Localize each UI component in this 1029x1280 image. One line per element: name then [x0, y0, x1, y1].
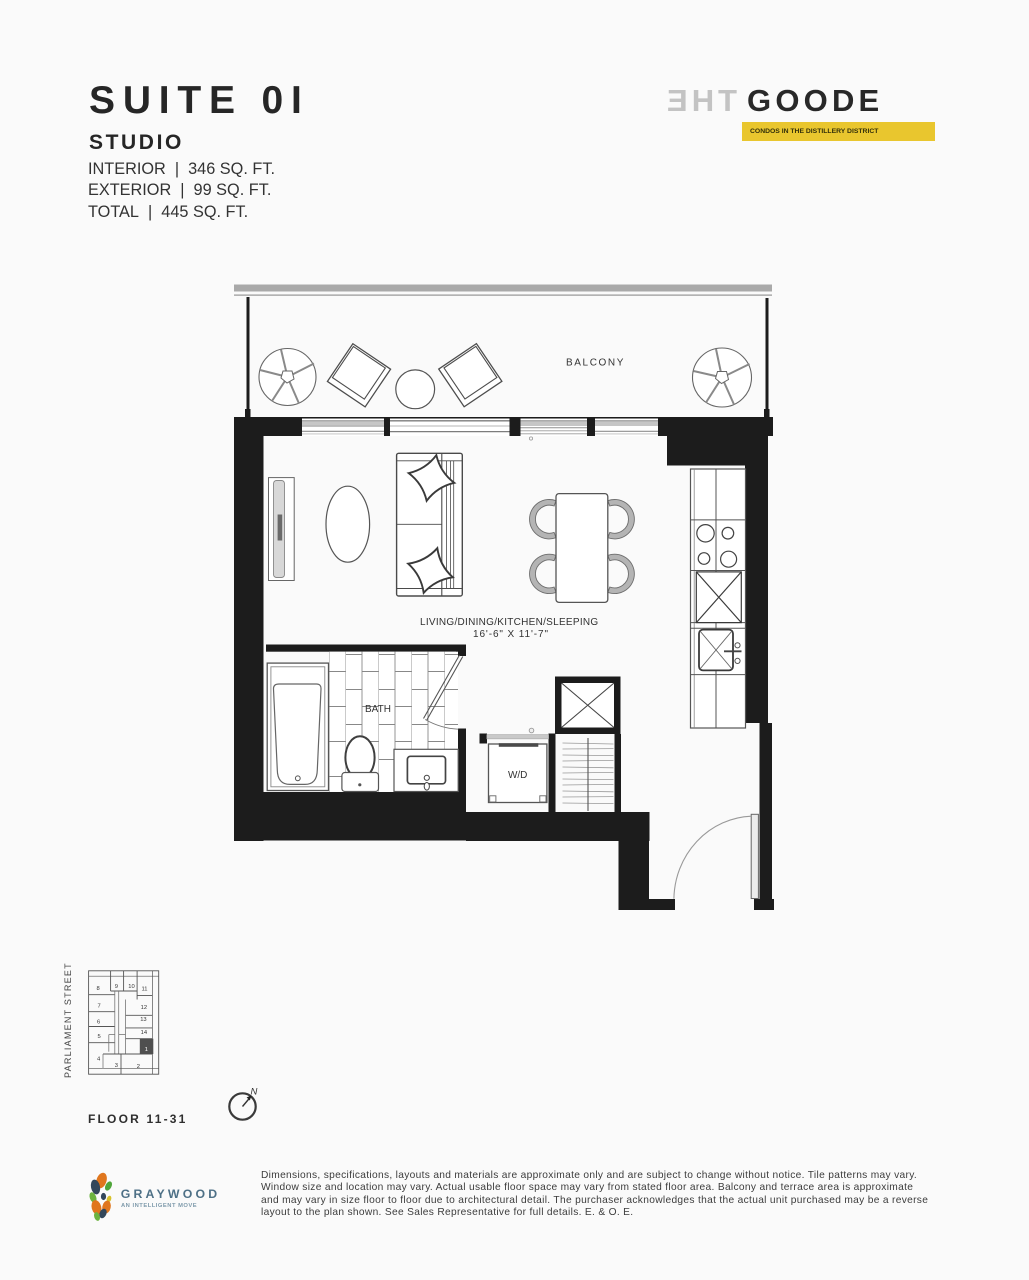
- svg-text:10: 10: [128, 984, 134, 990]
- svg-text:8: 8: [97, 986, 100, 992]
- svg-text:9: 9: [115, 984, 118, 990]
- svg-text:11: 11: [142, 987, 148, 993]
- svg-text:16'-6" X 11'-7": 16'-6" X 11'-7": [473, 629, 549, 640]
- svg-text:1: 1: [145, 1047, 148, 1053]
- svg-text:12: 12: [141, 1005, 147, 1011]
- svg-text:3: 3: [115, 1063, 118, 1069]
- svg-text:14: 14: [141, 1030, 148, 1036]
- svg-text:2: 2: [137, 1064, 140, 1070]
- svg-text:N: N: [251, 1087, 258, 1098]
- svg-text:BATH: BATH: [365, 704, 391, 715]
- svg-text:W/D: W/D: [508, 770, 527, 781]
- svg-text:7: 7: [98, 1004, 101, 1010]
- svg-text:5: 5: [98, 1034, 101, 1040]
- svg-text:BALCONY: BALCONY: [566, 358, 625, 369]
- svg-text:LIVING/DINING/KITCHEN/SLEEPING: LIVING/DINING/KITCHEN/SLEEPING: [420, 617, 598, 628]
- svg-text:13: 13: [140, 1017, 146, 1023]
- svg-text:4: 4: [97, 1057, 101, 1063]
- svg-text:6: 6: [97, 1019, 100, 1025]
